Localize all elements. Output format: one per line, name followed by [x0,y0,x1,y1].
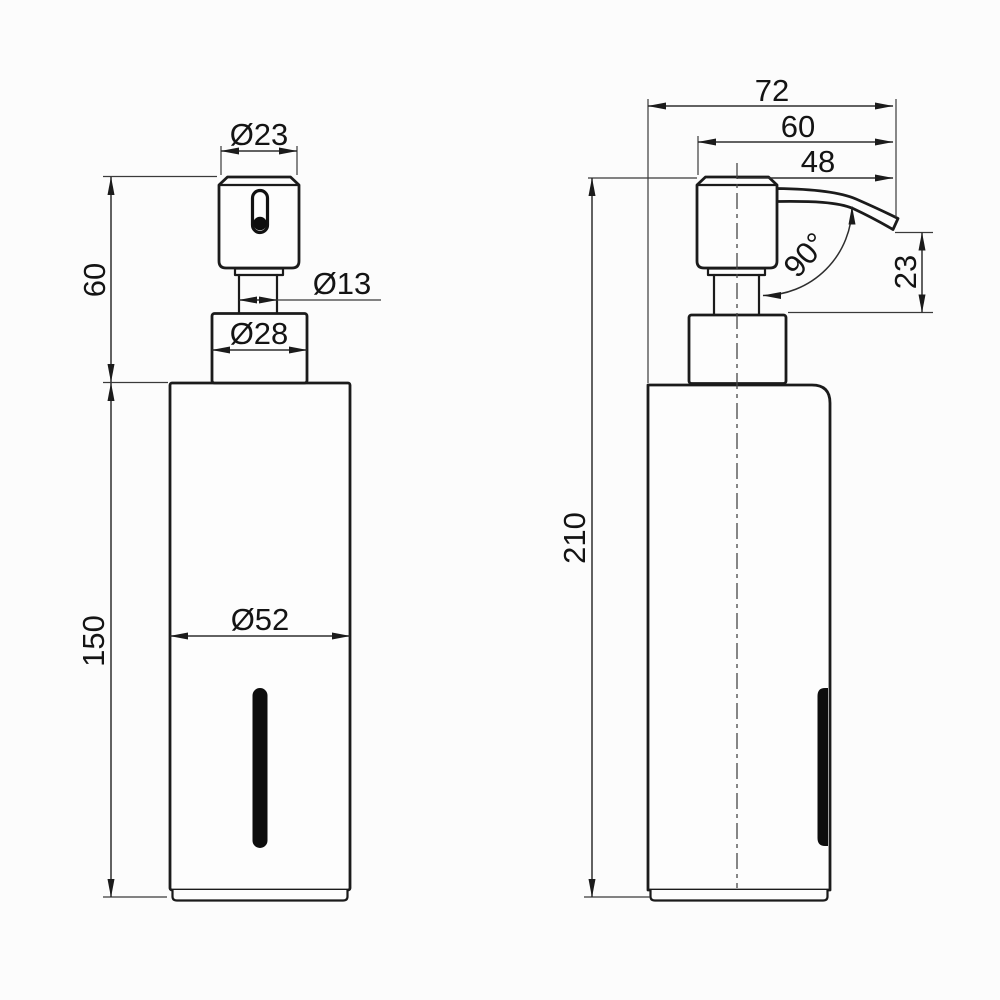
front-sensor-dot [253,217,267,231]
dim-side-spout-angle: 90° [777,226,834,284]
front-base-ring [173,890,348,901]
dim-front-pump-height: 60 [77,263,112,297]
side-sight-window [818,688,829,846]
dim-side-spout-projection: 48 [801,144,835,179]
dim-side-spout-drop: 23 [888,255,923,289]
dim-front-stem-diameter: Ø13 [313,266,372,301]
front-sight-window [253,688,268,848]
dim-side-reach: 60 [781,109,815,144]
dim-front-body-height: 150 [76,615,111,667]
dim-front-head-diameter: Ø23 [230,117,289,152]
dim-front-collar-diameter: Ø28 [230,316,289,351]
side-base-ring [651,890,828,901]
side-view [648,163,898,901]
dim-side-height: 210 [557,512,592,564]
side-spout [777,189,898,230]
side-body [648,385,830,890]
dim-front-body-diameter: Ø52 [231,602,290,637]
dim-side-depth: 72 [755,73,789,108]
soap-dispenser-technical-drawing: Ø23 60 150 Ø13 Ø28 Ø52 [0,0,1000,1000]
front-stem [239,275,277,313]
drawing-canvas: Ø23 60 150 Ø13 Ø28 Ø52 [0,0,1000,1000]
front-stem-ledge [235,269,283,276]
